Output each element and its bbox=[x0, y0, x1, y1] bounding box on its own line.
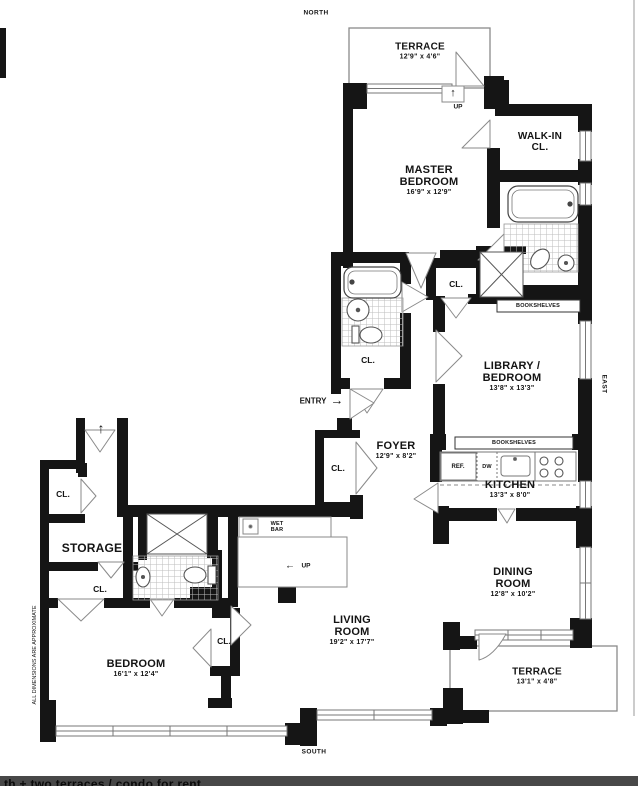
room-label-wet-bar: WET BAR bbox=[268, 521, 286, 533]
bookshelves-label-bottom: BOOKSHELVES bbox=[492, 440, 536, 446]
room-label-storage: STORAGE bbox=[62, 541, 123, 555]
floorplan: NORTH SOUTH EAST ALL DIMENSIONS ARE APPR… bbox=[0, 0, 638, 786]
caption-bar: th + two terraces / condo for rent bbox=[0, 776, 638, 786]
compass-east: EAST bbox=[601, 375, 608, 394]
room-label-foyer: FOYER 12'9" x 8'2" bbox=[376, 440, 417, 460]
room-label-terrace-south: TERRACE 13'1" x 4'8" bbox=[512, 667, 562, 686]
closet-label-storage-hall: CL. bbox=[93, 584, 107, 594]
stair-up-label: UP bbox=[301, 563, 310, 570]
entry-label: ENTRY bbox=[300, 397, 327, 406]
compass-north: NORTH bbox=[303, 10, 328, 17]
stair-up-arrow-icon: ← bbox=[285, 561, 295, 572]
room-label-kitchen: KITCHEN 13'3" x 8'0" bbox=[485, 479, 535, 499]
room-label-bedroom: BEDROOM 16'1" x 12'4" bbox=[107, 658, 166, 678]
dimensions-note: ALL DIMENSIONS ARE APPROXIMATE bbox=[32, 605, 38, 704]
closet-label-bath-hall: CL. bbox=[361, 355, 375, 365]
room-label-terrace-north: TERRACE 12'9" x 4'6" bbox=[395, 42, 445, 61]
closet-label-hall: CL. bbox=[449, 279, 463, 289]
terrace-up-label: UP bbox=[453, 104, 462, 111]
storage-up-arrow-icon: ↑ bbox=[98, 420, 105, 436]
room-label-master-bedroom: MASTER BEDROOM 16'9" x 12'9" bbox=[397, 164, 461, 196]
compass-south: SOUTH bbox=[302, 749, 327, 756]
room-label-walk-in-closet: WALK-IN CL. bbox=[513, 131, 567, 153]
dishwasher-label: DW bbox=[482, 464, 492, 470]
caption-text: th + two terraces / condo for rent bbox=[0, 777, 638, 786]
refrigerator-label: REF. bbox=[451, 464, 464, 470]
terrace-up-arrow-icon: ↑ bbox=[450, 87, 456, 99]
room-label-dining-room: DINING ROOM 12'8" x 10'2" bbox=[489, 566, 537, 598]
room-label-living-room: LIVING ROOM 19'2" x 17'7" bbox=[329, 614, 375, 646]
closet-label-bedroom: CL. bbox=[217, 636, 231, 646]
closet-label-foyer: CL. bbox=[331, 463, 345, 473]
entry-arrow-icon: → bbox=[331, 393, 344, 408]
room-label-library-bedroom: LIBRARY / BEDROOM 13'8" x 13'3" bbox=[480, 360, 544, 392]
bookshelves-label-top: BOOKSHELVES bbox=[516, 303, 560, 309]
closet-label-storage: CL. bbox=[56, 489, 70, 499]
